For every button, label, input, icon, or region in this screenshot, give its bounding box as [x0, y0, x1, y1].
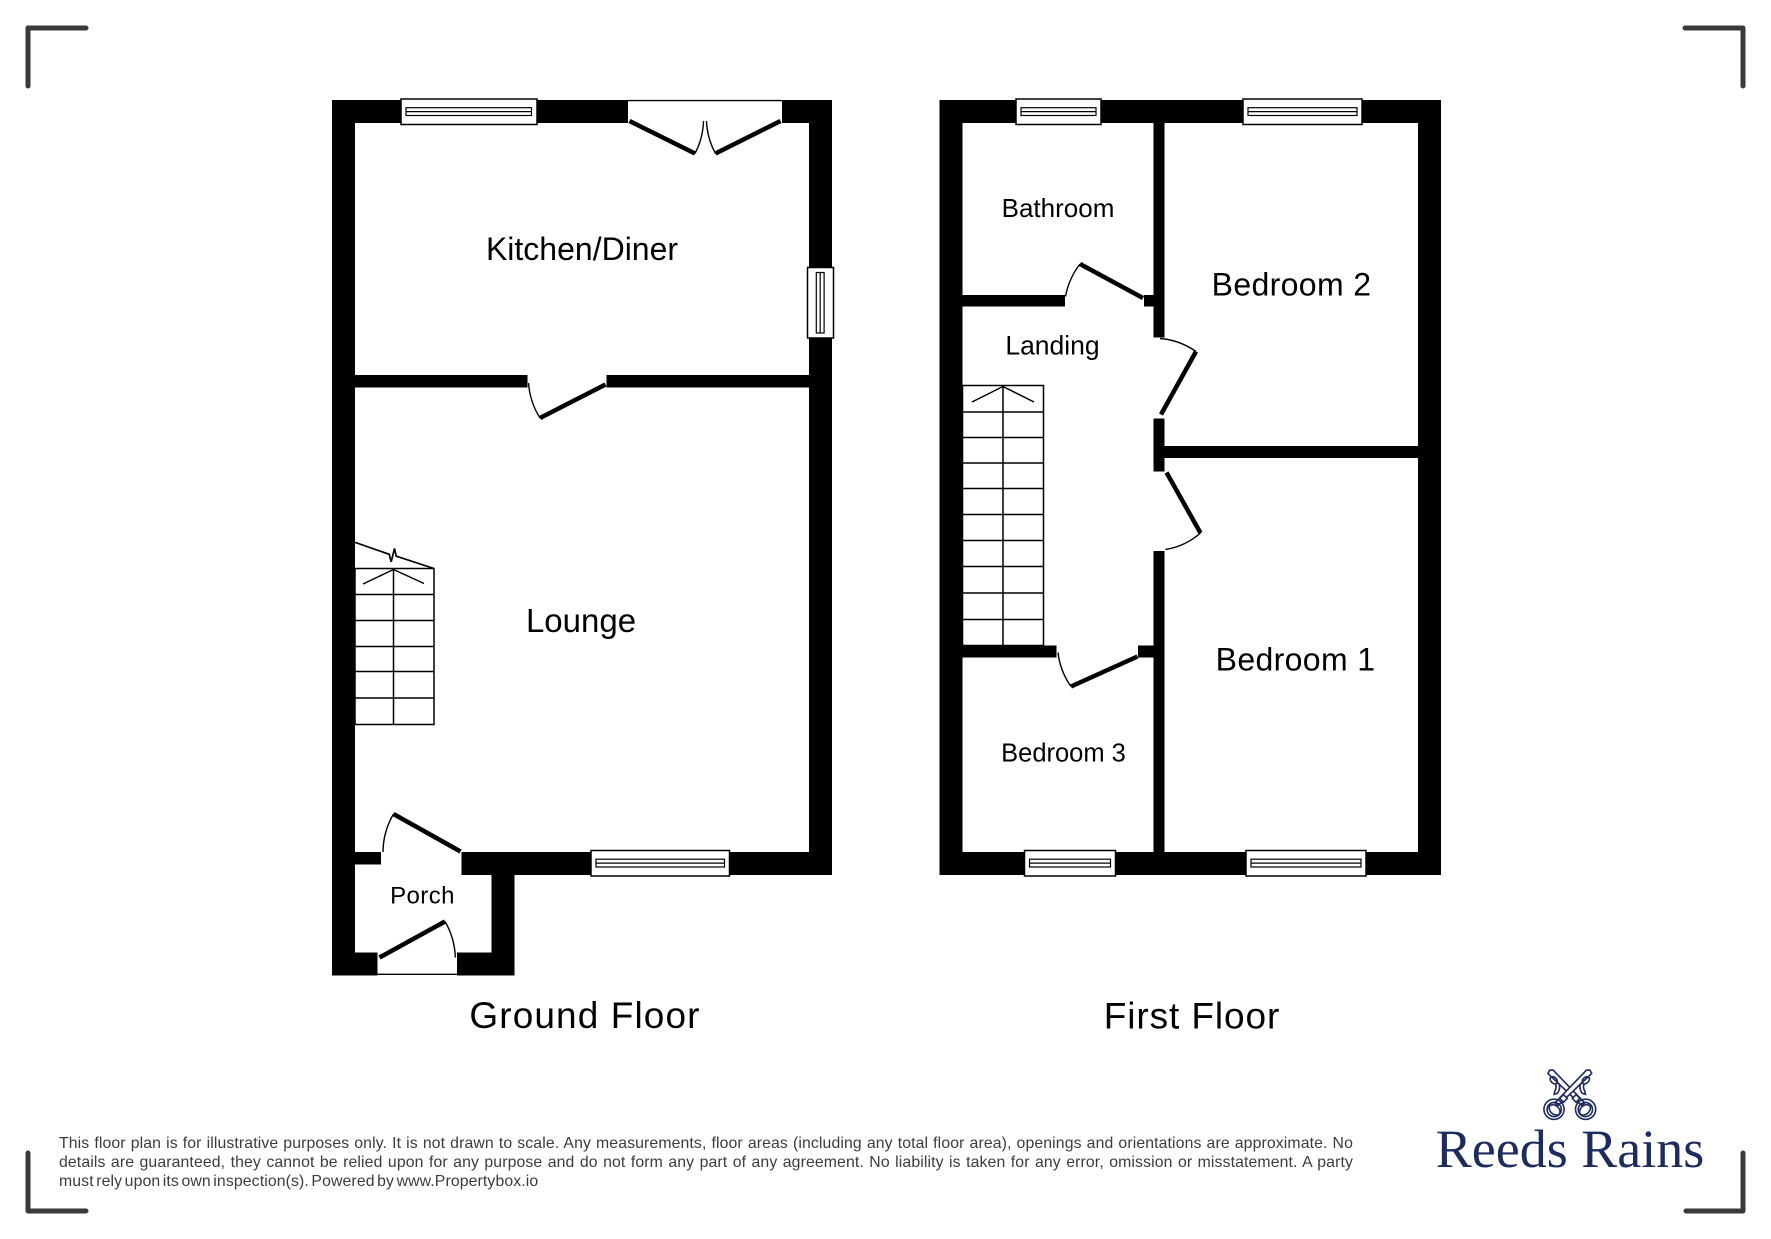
- svg-text:Bathroom: Bathroom: [1002, 193, 1115, 223]
- svg-text:Bedroom 3: Bedroom 3: [1001, 740, 1126, 768]
- svg-text:Ground Floor: Ground Floor: [469, 995, 700, 1036]
- svg-text:Landing: Landing: [1005, 331, 1099, 361]
- svg-text:Bedroom 1: Bedroom 1: [1216, 642, 1376, 678]
- svg-text:First Floor: First Floor: [1104, 996, 1280, 1037]
- svg-text:Kitchen/Diner: Kitchen/Diner: [486, 231, 678, 267]
- svg-text:Bedroom 2: Bedroom 2: [1212, 267, 1372, 303]
- svg-text:Porch: Porch: [390, 883, 455, 910]
- svg-text:Lounge: Lounge: [526, 602, 636, 639]
- svg-text:Reeds Rains: Reeds Rains: [1436, 1119, 1704, 1179]
